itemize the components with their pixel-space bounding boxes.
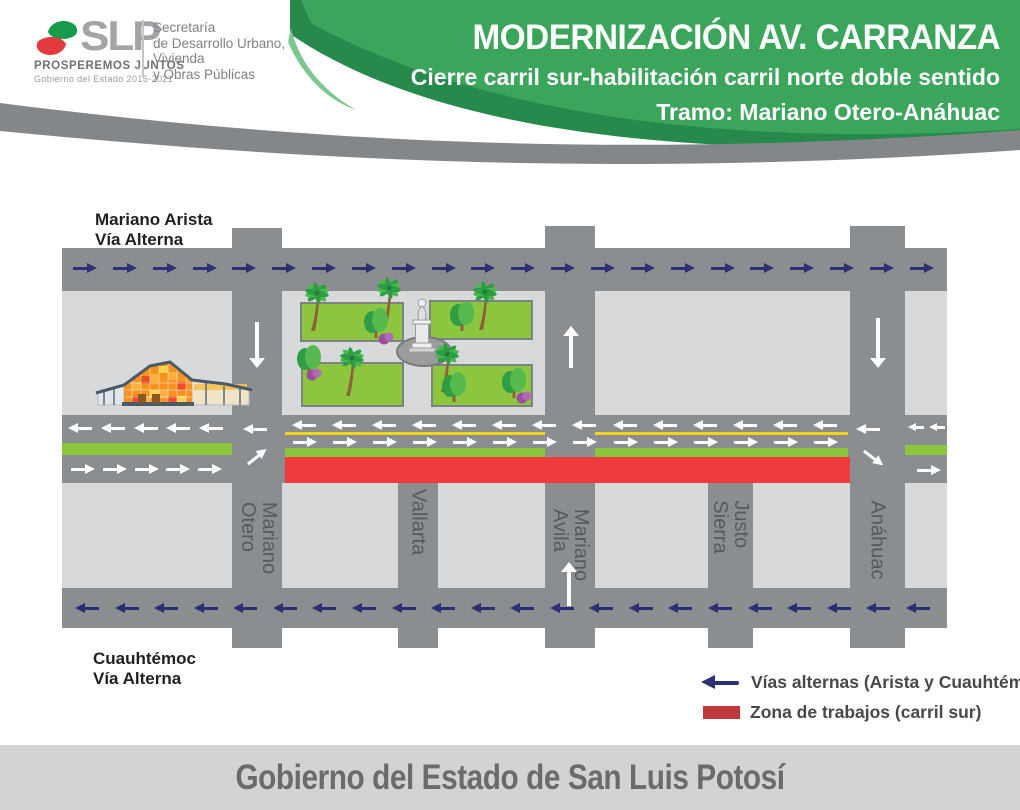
palm-tree-icon bbox=[305, 282, 330, 331]
traffic-arrow-icon bbox=[72, 262, 97, 275]
city-block bbox=[595, 483, 708, 588]
legend: Vías alternas (Arista y Cuauhtémoc) Zona… bbox=[701, 672, 1020, 732]
palm-tree-icon bbox=[340, 347, 365, 396]
traffic-arrow-icon bbox=[197, 463, 222, 476]
park-vegetation bbox=[280, 272, 548, 418]
traffic-arrow-icon bbox=[231, 262, 256, 275]
route-name: Cuauhtémoc bbox=[93, 649, 196, 669]
legend-label: Zona de trabajos (carril sur) bbox=[750, 702, 981, 723]
page-title: MODERNIZACIÓN AV. CARRANZA bbox=[440, 18, 1000, 58]
city-block bbox=[282, 483, 398, 588]
traffic-arrow-icon bbox=[273, 602, 298, 615]
traffic-arrow-icon bbox=[471, 602, 496, 615]
traffic-arrow-icon bbox=[152, 262, 177, 275]
traffic-arrow-icon bbox=[431, 602, 456, 615]
median-strip bbox=[595, 448, 848, 457]
carranza-east-south-arrow bbox=[916, 464, 942, 477]
traffic-arrow-icon bbox=[70, 463, 95, 476]
traffic-arrow-icon bbox=[112, 262, 137, 275]
traffic-arrow-icon bbox=[332, 419, 357, 432]
slp-swirl-icon bbox=[34, 18, 80, 58]
traffic-arrow-icon bbox=[510, 602, 535, 615]
carranza-west-south-arrows bbox=[70, 463, 222, 476]
traffic-arrow-icon bbox=[134, 422, 159, 435]
traffic-arrow-icon bbox=[916, 464, 941, 477]
logo-divider bbox=[142, 20, 144, 77]
street-label-anahuac: Anáhuac bbox=[867, 501, 888, 580]
secretariat-line: Secretaría bbox=[153, 20, 285, 36]
traffic-arrow-icon bbox=[748, 602, 773, 615]
traffic-arrow-icon bbox=[165, 463, 190, 476]
carranza-middle-westbound-arrows bbox=[292, 419, 838, 432]
slp-acronym: SLP bbox=[80, 16, 159, 56]
traffic-arrow-icon bbox=[909, 262, 934, 275]
traffic-arrow-icon bbox=[630, 262, 655, 275]
traffic-arrow-icon bbox=[773, 436, 798, 449]
traffic-arrow-icon bbox=[412, 436, 437, 449]
anahuac-street bbox=[850, 226, 905, 648]
traffic-arrow-icon bbox=[813, 419, 838, 432]
traffic-arrow-icon bbox=[115, 602, 140, 615]
traffic-arrow-icon bbox=[827, 602, 852, 615]
legend-work-zone-swatch bbox=[703, 706, 740, 719]
city-block bbox=[905, 483, 947, 588]
traffic-arrow-icon bbox=[813, 436, 838, 449]
traffic-arrow-icon bbox=[550, 262, 575, 275]
traffic-arrow-icon bbox=[452, 436, 477, 449]
anahuac-intersection-left-arrow bbox=[856, 423, 884, 436]
median-strip bbox=[285, 448, 545, 457]
traffic-arrow-icon bbox=[68, 422, 93, 435]
legend-item-work-zone: Zona de trabajos (carril sur) bbox=[701, 702, 1020, 723]
traffic-arrow-icon bbox=[233, 602, 258, 615]
traffic-arrow-icon bbox=[693, 436, 718, 449]
traffic-arrow-icon bbox=[629, 602, 654, 615]
page: SLP PROSPEREMOS JUNTOS Gobierno del Esta… bbox=[0, 0, 1020, 810]
traffic-arrow-icon bbox=[192, 262, 217, 275]
monument-statue-icon bbox=[409, 299, 435, 352]
traffic-arrow-icon bbox=[590, 262, 615, 275]
traffic-arrow-icon bbox=[292, 419, 317, 432]
center-line-yellow bbox=[285, 432, 545, 435]
traffic-arrow-icon bbox=[352, 602, 377, 615]
carranza-east-north-arrows bbox=[908, 421, 946, 433]
traffic-arrow-icon bbox=[292, 436, 317, 449]
traffic-arrow-icon bbox=[869, 262, 894, 275]
header-banner: SLP PROSPEREMOS JUNTOS Gobierno del Esta… bbox=[0, 0, 1020, 170]
otero-southbound-arrow bbox=[248, 322, 266, 368]
south-alternate-label: Cuauhtémoc Vía Alterna bbox=[93, 649, 196, 689]
traffic-arrow-icon bbox=[134, 463, 159, 476]
avila-northbound-arrow bbox=[562, 326, 580, 368]
footer-title: Gobierno del Estado de San Luis Potosí bbox=[235, 758, 784, 798]
route-name: Mariano Arista bbox=[95, 210, 212, 230]
traffic-arrow-icon bbox=[199, 422, 224, 435]
anahuac-southbound-arrow bbox=[869, 318, 887, 368]
median-strip bbox=[905, 445, 947, 455]
footer-banner: Gobierno del Estado de San Luis Potosí bbox=[0, 745, 1020, 810]
traffic-arrow-icon bbox=[372, 436, 397, 449]
traffic-arrow-icon bbox=[668, 602, 693, 615]
traffic-arrow-icon bbox=[102, 463, 127, 476]
street-label-mariano-otero: MarianoOtero bbox=[237, 502, 279, 574]
traffic-arrow-icon bbox=[154, 602, 179, 615]
bush-icon bbox=[379, 333, 394, 345]
cuauhtemoc-flow-arrows bbox=[75, 601, 931, 615]
work-zone-red-strip bbox=[285, 457, 850, 483]
secretariat-line: Vivienda bbox=[153, 51, 285, 67]
traffic-arrow-icon bbox=[670, 262, 695, 275]
street-label-justo-sierra: JustoSierra bbox=[709, 500, 751, 553]
landmark-building-icon bbox=[94, 352, 256, 414]
traffic-arrow-icon bbox=[856, 423, 881, 436]
secretariat-name: Secretaría de Desarrollo Urbano, Viviend… bbox=[153, 20, 285, 82]
traffic-arrow-icon bbox=[710, 262, 735, 275]
traffic-arrow-icon bbox=[572, 419, 597, 432]
traffic-arrow-icon bbox=[492, 436, 517, 449]
traffic-arrow-icon bbox=[613, 436, 638, 449]
traffic-arrow-icon bbox=[532, 419, 557, 432]
city-block bbox=[438, 483, 545, 588]
traffic-arrow-icon bbox=[101, 422, 126, 435]
traffic-arrow-icon bbox=[906, 602, 931, 615]
otero-intersection-left-arrow bbox=[243, 423, 271, 436]
traffic-arrow-icon bbox=[789, 262, 814, 275]
tree-icon bbox=[364, 308, 388, 338]
secretariat-line: y Obras Públicas bbox=[153, 67, 285, 83]
city-block bbox=[595, 291, 850, 415]
header-titles: MODERNIZACIÓN AV. CARRANZA Cierre carril… bbox=[411, 18, 1000, 126]
traffic-arrow-icon bbox=[194, 602, 219, 615]
traffic-arrow-icon bbox=[312, 602, 337, 615]
traffic-arrow-icon bbox=[332, 436, 357, 449]
city-block bbox=[753, 483, 850, 588]
city-block bbox=[62, 483, 232, 588]
traffic-arrow-icon bbox=[243, 423, 268, 436]
traffic-arrow-icon bbox=[653, 419, 678, 432]
traffic-arrow-icon bbox=[75, 602, 100, 615]
traffic-arrow-icon bbox=[166, 422, 191, 435]
bush-icon bbox=[517, 392, 532, 404]
traffic-arrow-icon bbox=[929, 422, 946, 433]
traffic-arrow-icon bbox=[708, 602, 733, 615]
legend-item-alt-routes: Vías alternas (Arista y Cuauhtémoc) bbox=[701, 672, 1020, 693]
center-line-yellow bbox=[595, 432, 848, 435]
traffic-arrow-icon bbox=[492, 419, 517, 432]
traffic-arrow-icon bbox=[733, 436, 758, 449]
traffic-arrow-icon bbox=[613, 419, 638, 432]
traffic-arrow-icon bbox=[908, 422, 925, 433]
traffic-arrow-icon bbox=[589, 602, 614, 615]
secretariat-line: de Desarrollo Urbano, bbox=[153, 36, 285, 52]
street-label-mariano-avila: MarianoAvila bbox=[549, 509, 591, 581]
traffic-arrow-icon bbox=[733, 419, 758, 432]
traffic-arrow-icon bbox=[572, 436, 597, 449]
traffic-arrow-icon bbox=[653, 436, 678, 449]
median-strip bbox=[62, 443, 232, 455]
traffic-arrow-icon bbox=[392, 602, 417, 615]
route-type: Vía Alterna bbox=[93, 669, 196, 689]
traffic-arrow-icon bbox=[452, 419, 477, 432]
traffic-arrow-icon bbox=[372, 419, 397, 432]
traffic-arrow-icon bbox=[787, 602, 812, 615]
legend-alt-route-arrow-icon bbox=[701, 675, 741, 690]
route-type: Vía Alterna bbox=[95, 230, 212, 250]
page-stretch: Tramo: Mariano Otero-Anáhuac bbox=[411, 99, 1000, 126]
traffic-arrow-icon bbox=[866, 602, 891, 615]
legend-label: Vías alternas (Arista y Cuauhtémoc) bbox=[751, 672, 1020, 693]
page-subtitle: Cierre carril sur-habilitación carril no… bbox=[411, 64, 1000, 91]
otero-street bbox=[232, 228, 282, 648]
traffic-arrow-icon bbox=[829, 262, 854, 275]
traffic-arrow-icon bbox=[773, 419, 798, 432]
traffic-arrow-icon bbox=[412, 419, 437, 432]
street-label-vallarta: Vallarta bbox=[408, 489, 429, 555]
carranza-middle-eastbound-arrows bbox=[292, 436, 838, 449]
carranza-west-north-arrows bbox=[68, 422, 224, 435]
traffic-arrow-icon bbox=[749, 262, 774, 275]
traffic-arrow-icon bbox=[693, 419, 718, 432]
palm-tree-icon bbox=[473, 281, 498, 330]
city-block bbox=[905, 291, 947, 415]
north-alternate-label: Mariano Arista Vía Alterna bbox=[95, 210, 212, 250]
tree-icon bbox=[450, 301, 474, 331]
traffic-arrow-icon bbox=[532, 436, 557, 449]
